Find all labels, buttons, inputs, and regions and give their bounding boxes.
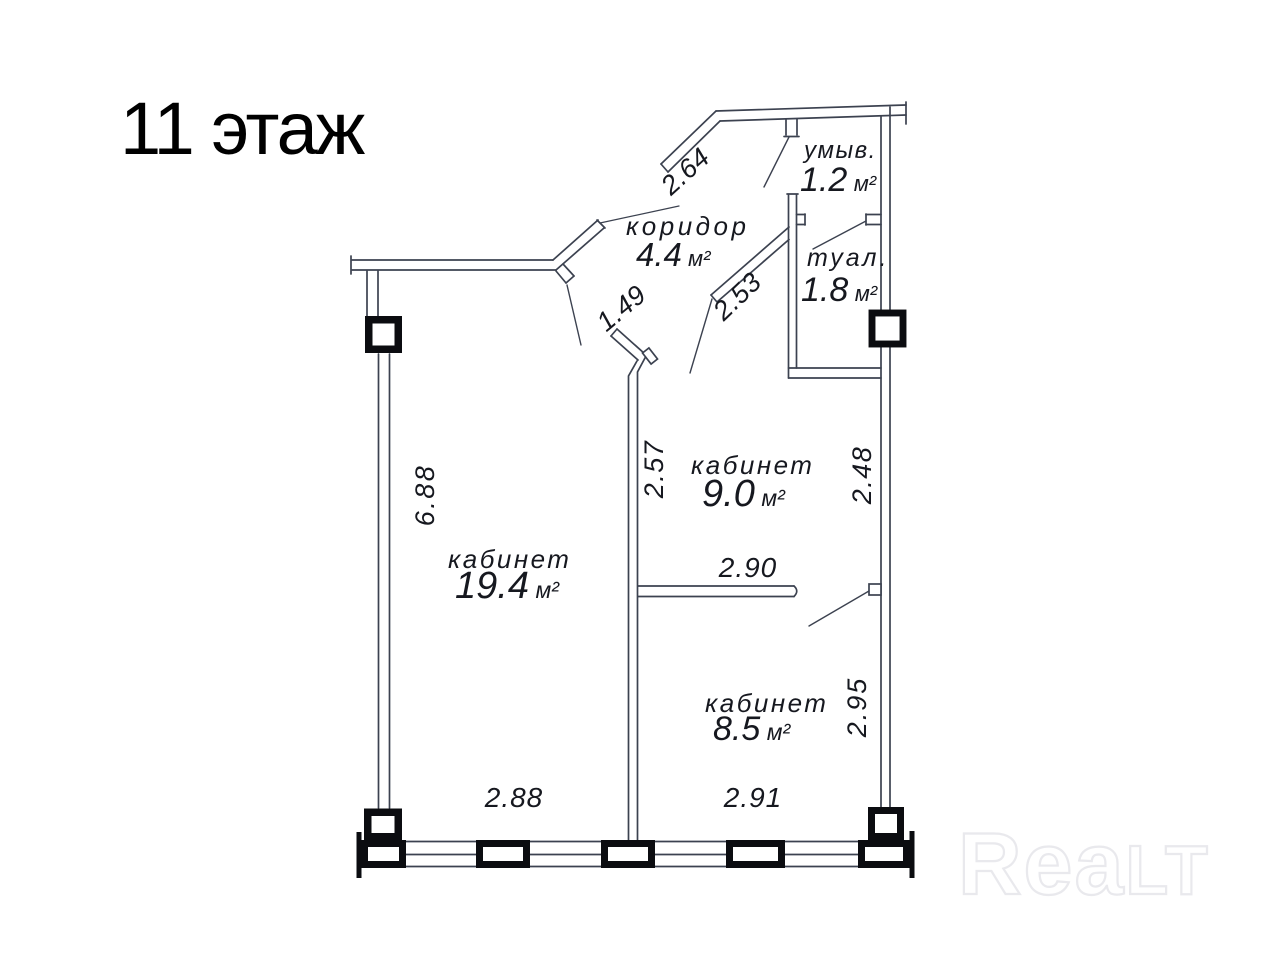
- svg-text:2.48: 2.48: [847, 446, 877, 506]
- svg-text:2.88: 2.88: [484, 782, 544, 813]
- svg-text:2.91: 2.91: [723, 782, 783, 813]
- svg-text:1.2 м²: 1.2 м²: [800, 161, 877, 199]
- svg-text:1.49: 1.49: [591, 279, 652, 337]
- svg-text:1.8 м²: 1.8 м²: [801, 271, 878, 309]
- svg-text:2.90: 2.90: [718, 552, 778, 583]
- svg-text:умыв.: умыв.: [802, 137, 877, 164]
- svg-text:туал.: туал.: [807, 244, 889, 272]
- svg-text:2.53: 2.53: [707, 267, 768, 327]
- svg-text:ReaLT: ReaLT: [958, 814, 1210, 913]
- svg-text:2.64: 2.64: [654, 142, 715, 201]
- svg-text:2.95: 2.95: [842, 677, 872, 739]
- svg-text:2.57: 2.57: [639, 440, 669, 500]
- svg-text:11 этаж: 11 этаж: [120, 87, 366, 170]
- svg-text:6.88: 6.88: [410, 464, 440, 527]
- svg-text:4.4 м²: 4.4 м²: [636, 236, 711, 273]
